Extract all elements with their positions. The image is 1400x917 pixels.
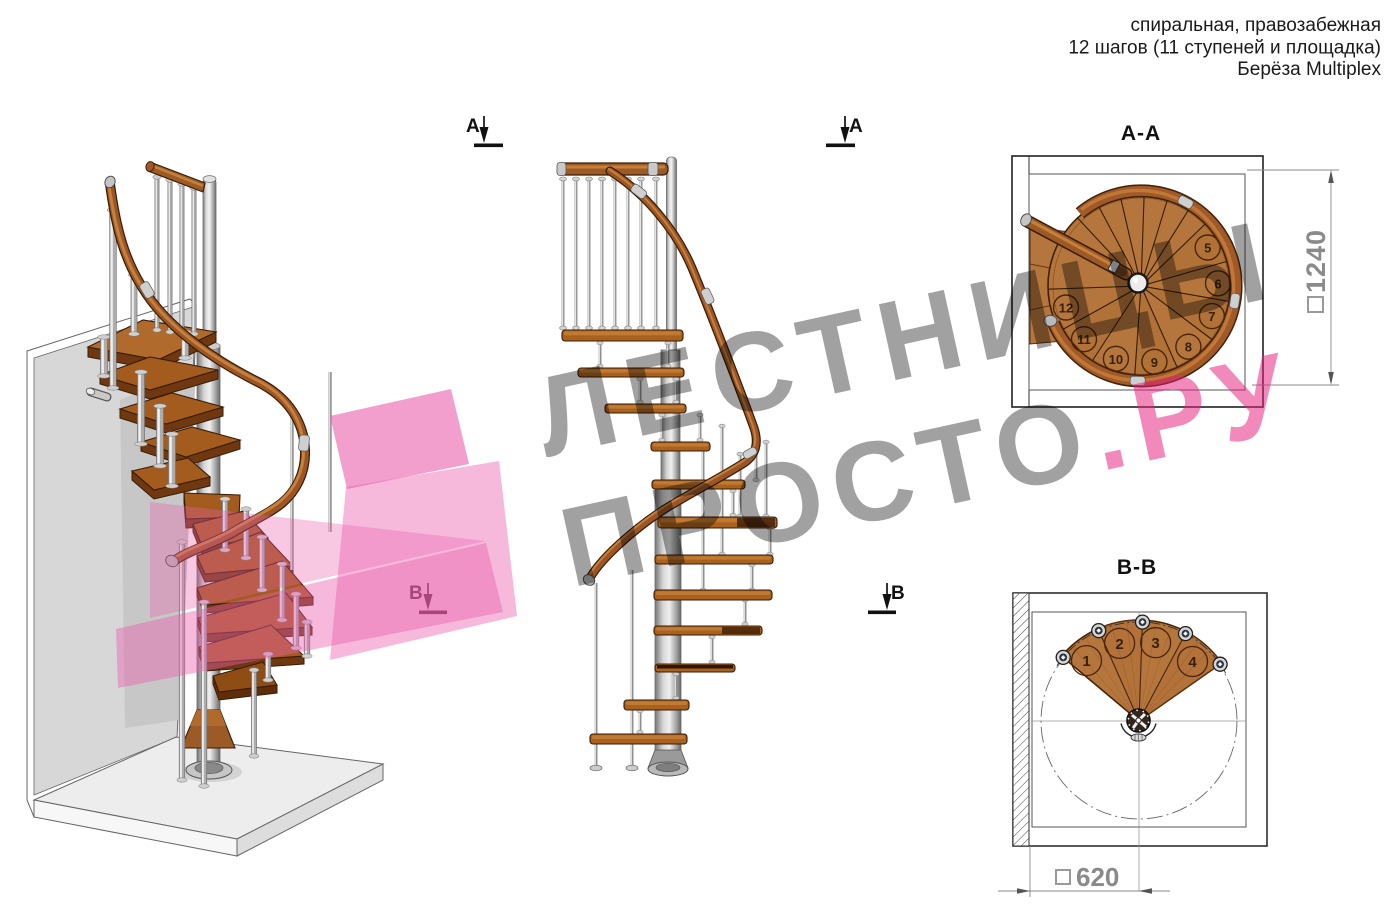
svg-text:3: 3 — [1151, 635, 1159, 652]
svg-text:1240: 1240 — [1301, 229, 1331, 293]
svg-text:4: 4 — [1188, 654, 1197, 671]
svg-text:A: A — [849, 116, 863, 137]
svg-text:Берёза Multiplex: Берёза Multiplex — [1237, 59, 1381, 80]
svg-text:A-A: A-A — [1121, 122, 1161, 145]
svg-text:спиральная, правозабежная: спиральная, правозабежная — [1131, 15, 1381, 36]
svg-text:1: 1 — [1082, 653, 1090, 670]
svg-text:B: B — [891, 583, 905, 604]
svg-text:12 шагов (11 ступеней и площад: 12 шагов (11 ступеней и площадка) — [1068, 38, 1381, 59]
svg-text:A: A — [466, 116, 480, 137]
svg-text:B-B: B-B — [1117, 556, 1157, 579]
svg-text:2: 2 — [1115, 636, 1123, 653]
svg-text:620: 620 — [1076, 862, 1119, 892]
